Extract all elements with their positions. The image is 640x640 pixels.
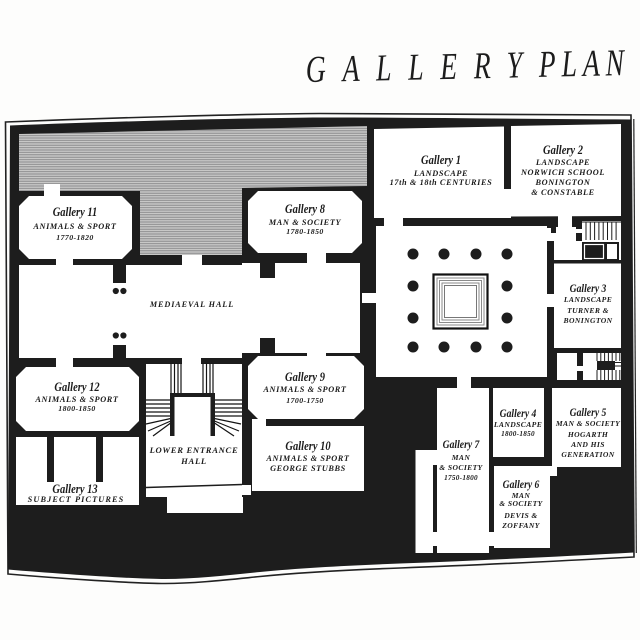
svg-text:Gallery 1: Gallery 1: [421, 154, 461, 167]
svg-text:MEDIAEVAL HALL: MEDIAEVAL HALL: [149, 300, 234, 309]
svg-text:LOWER ENTRANCE: LOWER ENTRANCE: [149, 445, 239, 455]
svg-text:MAN & SOCIETY: MAN & SOCIETY: [268, 218, 342, 227]
svg-text:Gallery 11: Gallery 11: [53, 206, 98, 219]
svg-text:MAN: MAN: [451, 453, 471, 462]
svg-text:GALLERY: GALLERY: [305, 44, 539, 91]
svg-text:LANDSCAPE: LANDSCAPE: [413, 169, 468, 178]
svg-text:GENERATION: GENERATION: [561, 450, 614, 459]
svg-text:& SOCIETY: & SOCIETY: [439, 463, 483, 472]
svg-text:MAN & SOCIETY: MAN & SOCIETY: [555, 419, 621, 428]
svg-text:Gallery 5: Gallery 5: [570, 407, 607, 419]
svg-text:1780-1850: 1780-1850: [286, 227, 323, 236]
svg-text:Gallery 12: Gallery 12: [54, 381, 99, 394]
svg-text:Gallery 2: Gallery 2: [543, 144, 583, 157]
svg-text:& SOCIETY: & SOCIETY: [499, 499, 543, 508]
svg-text:LANDSCAPE: LANDSCAPE: [493, 420, 542, 429]
svg-text:ANIMALS & SPORT: ANIMALS & SPORT: [265, 454, 350, 463]
svg-text:AND HIS: AND HIS: [570, 440, 605, 449]
svg-text:LANDSCAPE: LANDSCAPE: [535, 158, 590, 167]
svg-text:ANIMALS & SPORT: ANIMALS & SPORT: [34, 395, 119, 404]
svg-text:1750-1800: 1750-1800: [444, 474, 478, 482]
svg-text:1770-1820: 1770-1820: [56, 233, 93, 242]
svg-text:Gallery 7: Gallery 7: [443, 439, 480, 451]
svg-text:HALL: HALL: [180, 456, 207, 466]
svg-text:SUBJECT PICTURES: SUBJECT PICTURES: [28, 495, 125, 504]
svg-text:Gallery 3: Gallery 3: [570, 283, 607, 295]
svg-text:TURNER &: TURNER &: [567, 306, 609, 315]
svg-text:Gallery 9: Gallery 9: [285, 371, 325, 384]
svg-text:1800-1850: 1800-1850: [501, 430, 535, 438]
svg-text:Gallery 8: Gallery 8: [285, 203, 325, 216]
svg-text:NORWICH SCHOOL: NORWICH SCHOOL: [520, 168, 605, 177]
svg-text:ANIMALS & SPORT: ANIMALS & SPORT: [32, 222, 117, 231]
svg-text:& CONSTABLE: & CONSTABLE: [531, 188, 595, 197]
svg-text:17th & 18th CENTURIES: 17th & 18th CENTURIES: [390, 178, 493, 187]
svg-text:GEORGE STUBBS: GEORGE STUBBS: [270, 464, 346, 473]
svg-text:Gallery 6: Gallery 6: [503, 479, 540, 491]
svg-text:BONINGTON: BONINGTON: [562, 316, 612, 325]
svg-text:Gallery 10: Gallery 10: [285, 440, 330, 453]
svg-text:PLAN: PLAN: [537, 42, 630, 86]
svg-text:LANDSCAPE: LANDSCAPE: [563, 295, 612, 304]
svg-text:HOGARTH: HOGARTH: [567, 430, 609, 439]
svg-text:Gallery 4: Gallery 4: [500, 408, 537, 420]
svg-text:DEVIS &: DEVIS &: [503, 511, 537, 520]
svg-text:1800-1850: 1800-1850: [58, 404, 95, 413]
svg-text:1700-1750: 1700-1750: [286, 396, 323, 405]
svg-text:BONINGTON: BONINGTON: [534, 178, 590, 187]
svg-text:ANIMALS & SPORT: ANIMALS & SPORT: [262, 385, 347, 394]
svg-text:ZOFFANY: ZOFFANY: [501, 521, 541, 530]
